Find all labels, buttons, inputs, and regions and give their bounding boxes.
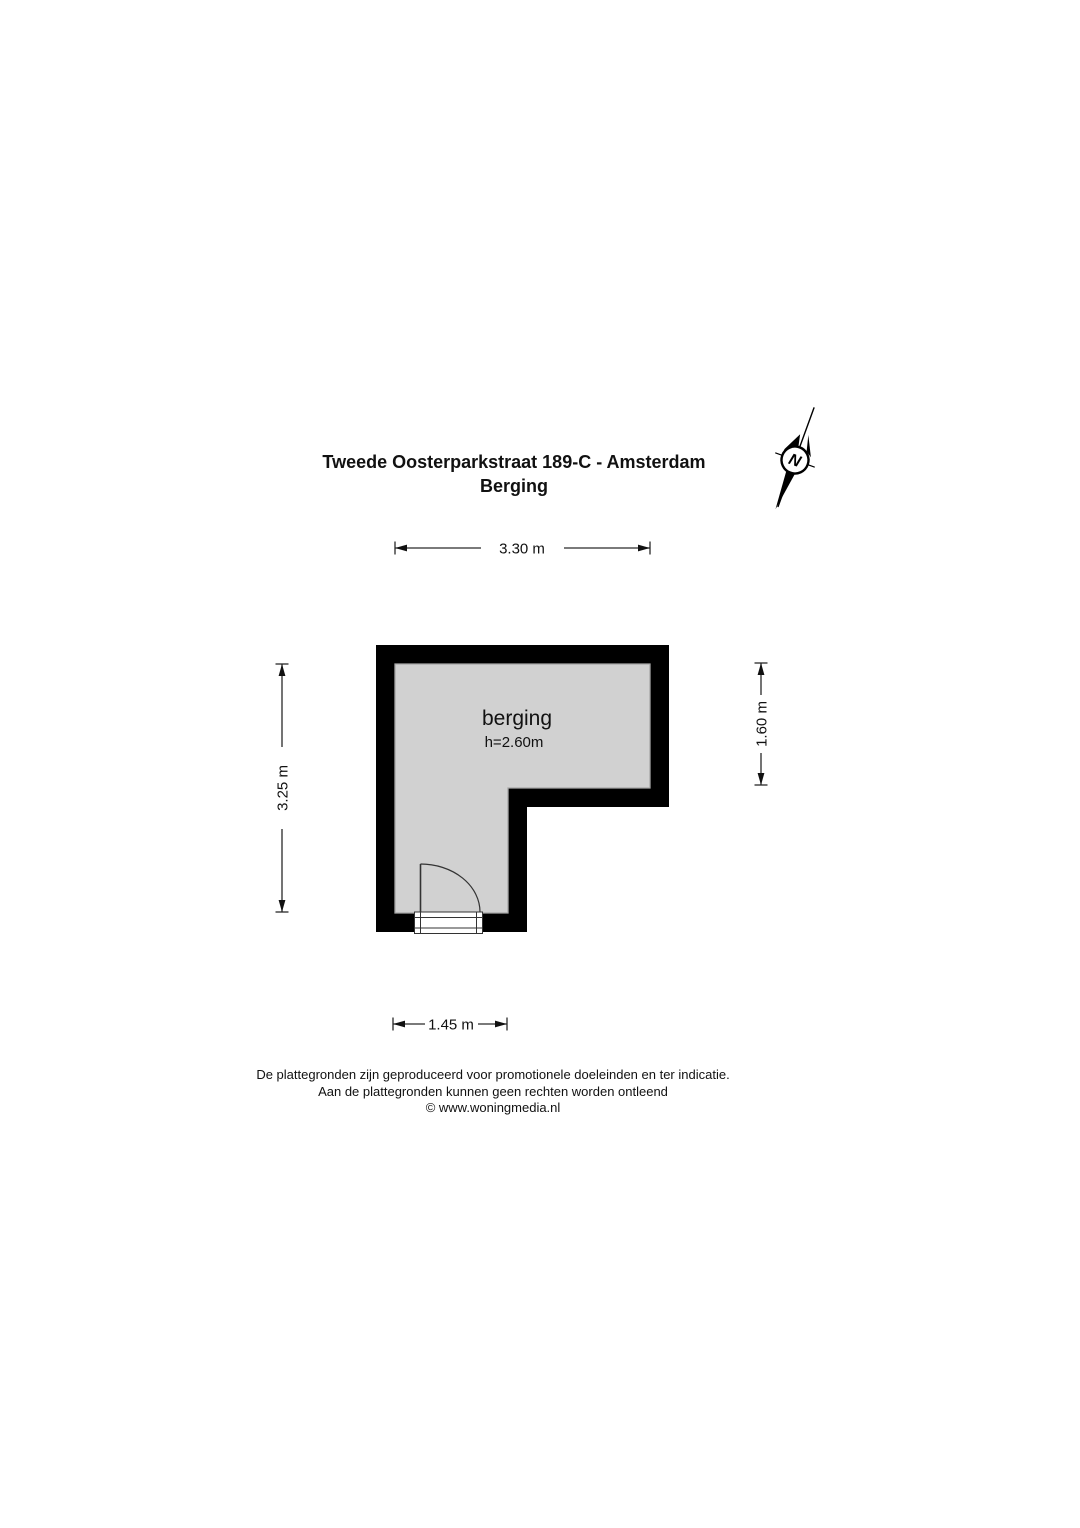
disclaimer-copyright: © www.woningmedia.nl [256,1100,729,1117]
dimension-right-label: 1.60 m [754,701,771,747]
room-ceiling-height-label: h=2.60m [485,734,544,751]
dimension-top-label: 3.30 m [499,541,545,558]
north-compass-icon: N [757,400,834,517]
dimension-left-label: 3.25 m [275,765,292,811]
disclaimer: De plattegronden zijn geproduceerd voor … [256,1067,729,1117]
dimension-top: 3.30 m [395,541,650,558]
dimension-right: 1.60 m [754,663,771,785]
door-threshold [415,912,483,934]
dimension-bottom-label: 1.45 m [428,1017,474,1034]
disclaimer-line-1: De plattegronden zijn geproduceerd voor … [256,1067,729,1084]
room-name-label: berging [482,707,552,730]
dimension-left: 3.25 m [275,664,292,912]
floorplan-drawing: N 3.30 m 3.25 m [0,0,1080,1528]
dimension-bottom: 1.45 m [393,1017,507,1034]
floorplan-page: Tweede Oosterparkstraat 189-C - Amsterda… [0,0,1080,1528]
compass-south-needle [773,469,796,512]
disclaimer-line-2: Aan de plattegronden kunnen geen rechten… [256,1084,729,1101]
